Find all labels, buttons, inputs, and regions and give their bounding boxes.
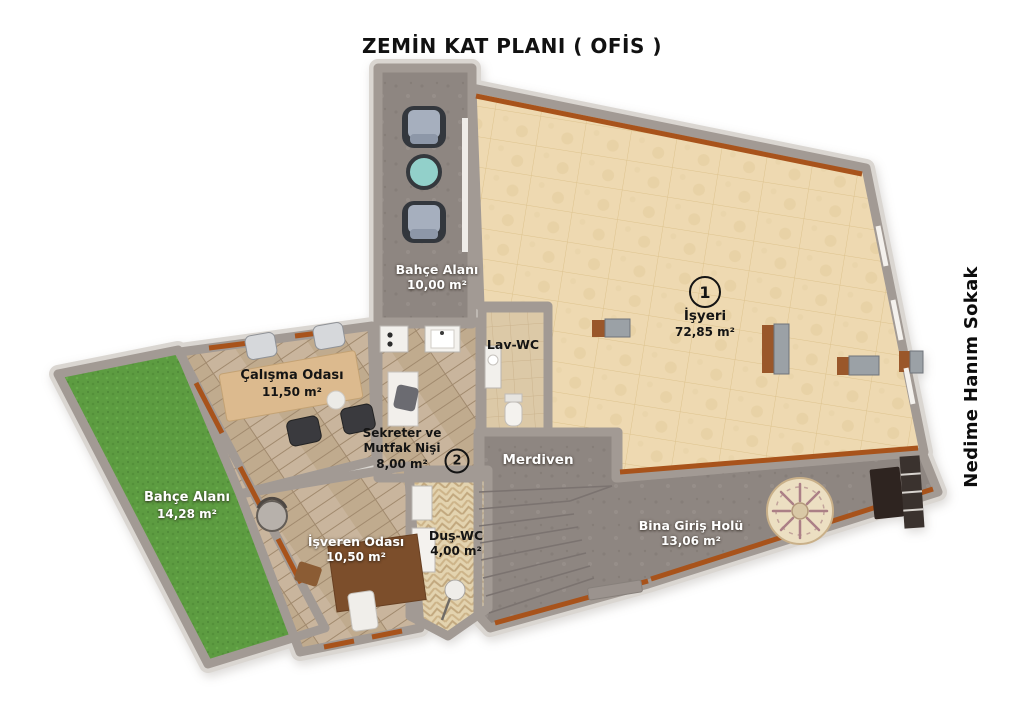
terrace-name: Bahçe Alanı — [396, 262, 479, 278]
merdiven-label: Merdiven — [502, 452, 573, 469]
garden-area: 14,28 m² — [144, 507, 230, 522]
duswc-area: 4,00 m² — [429, 544, 483, 559]
terrace-armchair-bottom — [402, 201, 446, 243]
lavwc-label: Lav-WC — [487, 337, 539, 353]
floor-plan-page: ZEMİN KAT PLANI ( OFİS ) Nedime Hanım So… — [0, 0, 1024, 724]
garden-name: Bahçe Alanı — [144, 490, 230, 507]
isyeri-label: İşyeri 72,85 m² — [675, 308, 735, 341]
lavwc-name: Lav-WC — [487, 337, 539, 353]
sekreter-line1: Sekreter ve — [363, 426, 442, 441]
hol-name: Bina Giriş Holü — [639, 518, 744, 534]
floor-plan-canvas — [0, 0, 1024, 724]
terrace-glass-panel — [462, 118, 468, 252]
isyeri-area: 72,85 m² — [675, 325, 735, 340]
duswc-name: Duş-WC — [429, 528, 483, 544]
calisma-name: Çalışma Odası — [240, 368, 343, 385]
plan-title: ZEMİN KAT PLANI ( OFİS ) — [0, 34, 1024, 58]
secretary-desk — [388, 372, 419, 426]
terrace-area: 10,00 m² — [396, 278, 479, 293]
merdiven-name: Merdiven — [502, 452, 573, 469]
hol-label: Bina Giriş Holü 13,06 m² — [639, 518, 744, 549]
isveren-name: İşveren Odası — [308, 534, 404, 550]
calisma-area: 11,50 m² — [240, 385, 343, 400]
isyeri-number-badge: 1 — [689, 276, 721, 308]
duswc-label: Duş-WC 4,00 m² — [429, 528, 483, 559]
sekreter-label: Sekreter ve Mutfak Nişi 8,00 m² — [363, 426, 442, 472]
isveren-label: İşveren Odası 10,50 m² — [308, 534, 404, 565]
medallion-floor-ornament — [767, 478, 833, 544]
garden-label: Bahçe Alanı 14,28 m² — [144, 490, 230, 522]
isyeri-name: İşyeri — [675, 308, 735, 325]
terrace-armchair-top — [402, 106, 446, 148]
isveren-area: 10,50 m² — [308, 550, 404, 565]
street-name-label: Nedime Hanım Sokak — [961, 247, 983, 507]
sekreter-area: 8,00 m² — [363, 457, 442, 472]
terrace-label: Bahçe Alanı 10,00 m² — [396, 262, 479, 293]
terrace-round-table — [408, 156, 440, 188]
entry-mat — [869, 467, 904, 520]
sekreter-line2: Mutfak Nişi — [363, 441, 442, 456]
calisma-label: Çalışma Odası 11,50 m² — [240, 368, 343, 400]
sekreter-number-badge: 2 — [445, 449, 470, 474]
hol-area: 13,06 m² — [639, 534, 744, 549]
